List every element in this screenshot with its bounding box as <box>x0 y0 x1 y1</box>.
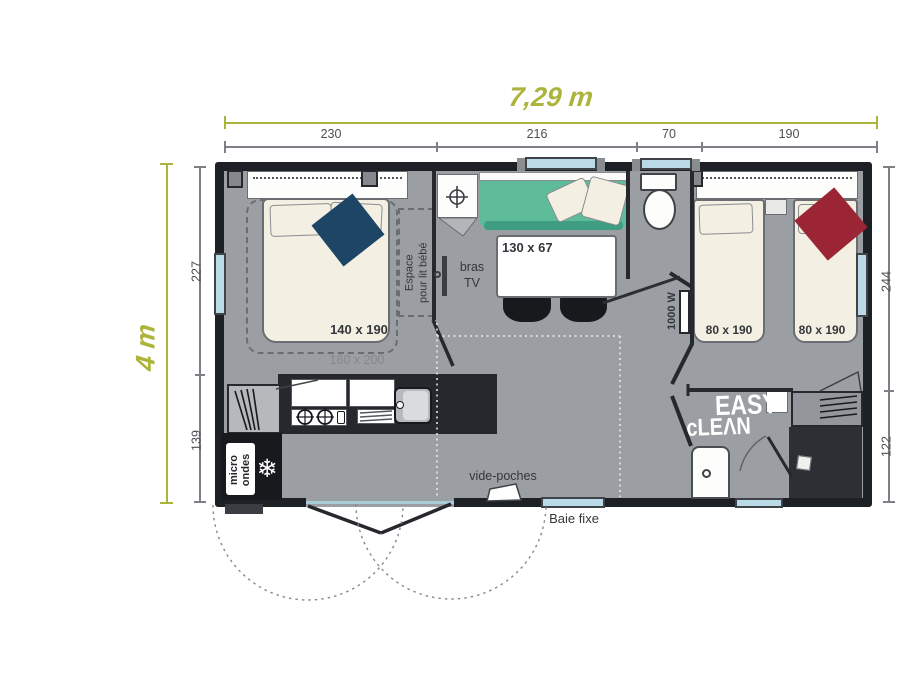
wc-window <box>640 158 692 170</box>
shower-drain <box>796 455 812 471</box>
dim-tick <box>160 163 173 165</box>
dim-tick <box>224 116 226 129</box>
bathroom-wardrobe <box>791 391 863 427</box>
window-cap <box>632 159 640 171</box>
entry-door-leaf <box>381 504 451 533</box>
pillow <box>698 203 753 235</box>
utility-box <box>437 174 478 218</box>
hob-small-burner <box>337 411 345 424</box>
tv-label-line1: bras <box>460 260 484 274</box>
entry-door-leaf <box>308 506 381 533</box>
wall-post <box>227 170 243 188</box>
dim-tick <box>701 142 703 152</box>
overall-width-label: 7,29 m <box>449 82 652 113</box>
sofa-front-edge <box>484 221 623 230</box>
bathroom-window <box>735 498 783 508</box>
dim-tick <box>876 116 878 129</box>
kids-bed-left-size-label: 80 x 190 <box>695 323 763 337</box>
dim-tick <box>160 502 173 504</box>
washbasin-drain <box>702 469 711 478</box>
drainer-panel <box>357 409 395 424</box>
kitchen-cabinet-door <box>291 379 347 407</box>
entry-door-swing-arc <box>356 504 546 599</box>
right-segment-122: 122 <box>880 421 895 473</box>
right-segment-244: 244 <box>880 256 895 308</box>
dim-tick <box>883 166 895 168</box>
dim-tick <box>224 141 226 153</box>
bed-option-size-label: 160 x 200 <box>307 353 407 367</box>
headboard-dotted-line <box>702 177 852 179</box>
window-cap <box>517 158 525 171</box>
toilet-bowl <box>643 189 676 230</box>
left-segment-227: 227 <box>190 246 205 298</box>
wc-left-wall <box>626 171 630 279</box>
dim-tick <box>884 390 894 392</box>
overall-width-dimension-line <box>225 122 878 124</box>
dim-tick <box>876 141 878 153</box>
living-window <box>525 157 597 170</box>
master-headboard-shelf <box>247 171 408 199</box>
baby-bed-space-label: Espace pour lit bébé <box>403 228 431 318</box>
kitchen-wardrobe <box>227 384 281 434</box>
tv-label: bras TV <box>450 259 494 292</box>
wall-post <box>361 170 378 187</box>
window-cap <box>597 158 605 171</box>
snowflake-icon: ❄ <box>254 454 280 484</box>
table-size-label: 130 x 67 <box>502 240 562 255</box>
segment-dimension-line <box>225 146 878 148</box>
microwave-line2: ondes <box>240 454 252 486</box>
sink-faucet <box>396 401 404 409</box>
entry-step <box>225 504 263 514</box>
dim-tick <box>436 142 438 152</box>
door-sill <box>306 501 454 504</box>
kids-window <box>856 253 868 317</box>
bay-window <box>541 497 605 508</box>
entry-door-swing-arc <box>213 505 403 600</box>
microwave-label: micro ondes <box>228 428 252 512</box>
top-segment-190: 190 <box>739 127 839 142</box>
tv-label-line2: TV <box>464 276 480 290</box>
baby-space-line2: pour lit bébé <box>417 242 429 303</box>
pocket-label: vide-poches <box>453 469 553 483</box>
dim-tick <box>636 142 638 152</box>
headboard-dotted-line <box>253 177 402 179</box>
dim-tick <box>194 166 206 168</box>
baby-space-line1: Espace <box>403 254 415 291</box>
dim-tick <box>195 374 205 376</box>
floor-plan-page: 7,29 m 230 216 70 190 4 m 227 139 244 12… <box>0 0 900 675</box>
wall-post <box>692 170 703 187</box>
master-window <box>214 253 226 315</box>
dim-tick <box>194 501 206 503</box>
easy-clean-logo: EASY cLEΛN <box>685 392 782 438</box>
wall-heater <box>679 290 690 334</box>
top-segment-216: 216 <box>487 127 587 142</box>
overall-height-dimension-line <box>166 164 168 504</box>
kitchen-cabinet-door <box>349 379 395 407</box>
overall-height-label: 4 m <box>131 304 162 391</box>
sink-basin <box>403 391 428 420</box>
tv-bracket-hinge <box>434 271 441 278</box>
dim-tick <box>883 501 895 503</box>
partition-wall-master <box>432 171 436 320</box>
master-bed-size-label: 140 x 190 <box>324 322 394 337</box>
top-segment-230: 230 <box>281 127 381 142</box>
nightstand <box>765 199 787 215</box>
kids-bed-right-size-label: 80 x 190 <box>789 323 855 337</box>
top-segment-70: 70 <box>619 127 719 142</box>
bay-window-label: Baie fixe <box>543 511 605 526</box>
easy-clean-line2: cLEΛN <box>686 413 783 440</box>
heater-power-label: 1000 W <box>666 281 678 341</box>
window-cap <box>692 159 700 171</box>
left-segment-139: 139 <box>190 415 205 467</box>
tv-bracket <box>442 256 447 296</box>
microwave-line1: micro <box>228 455 240 485</box>
